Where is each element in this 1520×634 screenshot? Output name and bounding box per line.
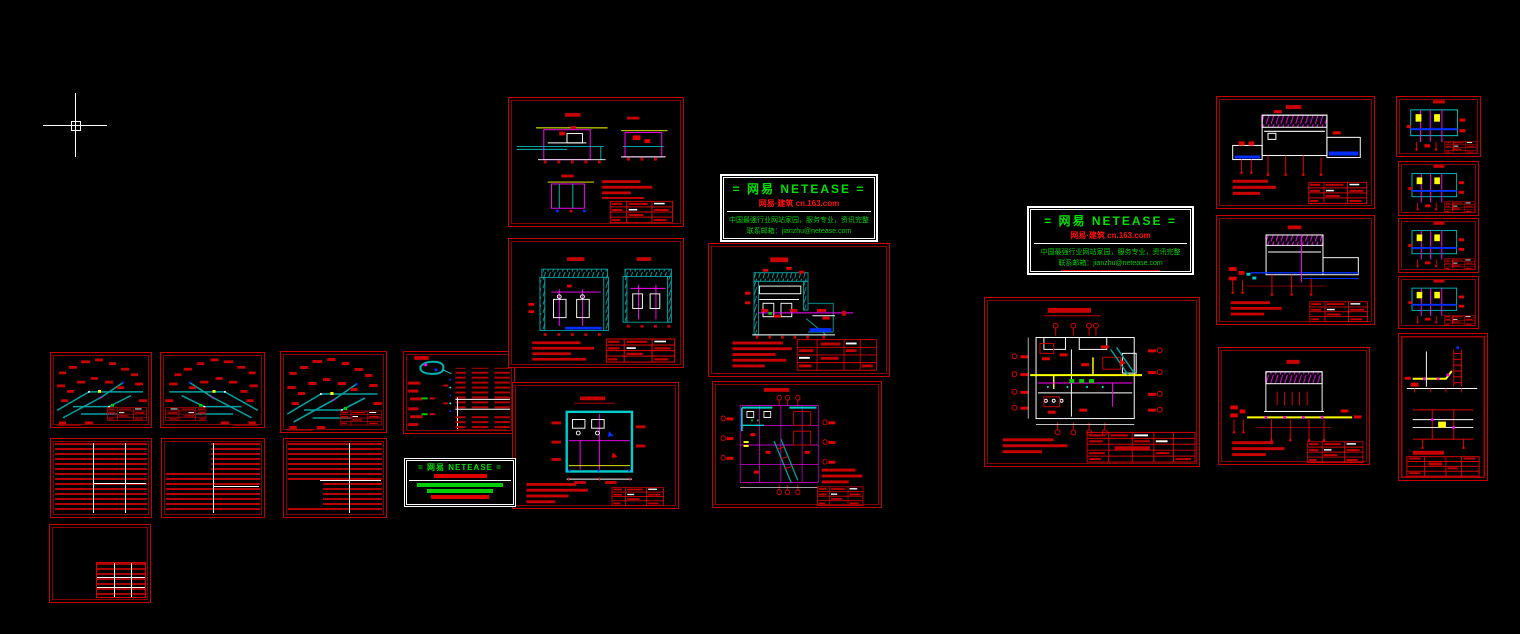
notes <box>1231 301 1282 315</box>
sheet-filter-section-2[interactable] <box>1216 215 1375 325</box>
tank-left <box>528 269 608 336</box>
drops <box>1272 419 1325 439</box>
notes <box>732 342 791 368</box>
drops <box>1268 156 1321 174</box>
pump-cluster <box>1230 406 1245 434</box>
watermark-subtitle: 网易·建筑 cn.163.com <box>759 198 839 209</box>
title-block <box>96 562 146 598</box>
notes <box>1233 180 1276 195</box>
notes <box>1232 441 1285 456</box>
sheet-detail-1[interactable] <box>1396 96 1481 157</box>
notes <box>532 341 594 360</box>
watermark-line1: 中国最强行业网站家园，服务专业，资讯完整 <box>729 215 869 225</box>
filter-media <box>1266 235 1323 245</box>
section-left <box>517 126 608 163</box>
section-right <box>621 131 667 161</box>
station-section-drawing <box>709 244 889 376</box>
fixture-symbols <box>421 379 451 416</box>
title-table <box>1407 457 1479 476</box>
ramp <box>774 439 798 482</box>
filter-section-2-drawing <box>1217 216 1374 324</box>
iso-drawing-2 <box>161 353 264 427</box>
pump-cluster <box>1229 267 1256 294</box>
internal-arrows <box>1277 392 1307 406</box>
sheet-floor-plan-large[interactable] <box>984 297 1200 467</box>
axis-bubbles-sides <box>1012 348 1162 435</box>
sheet-iso-piping-1[interactable] <box>50 352 152 428</box>
watermark-divider <box>1034 243 1187 244</box>
label-marks <box>1020 345 1155 413</box>
notes-text-1 <box>55 443 147 513</box>
floor-plan-large-drawing <box>985 298 1199 466</box>
watermark-divider <box>409 480 511 481</box>
watermark-title: = 网易 NETEASE = <box>418 462 502 473</box>
schedule-text <box>455 368 509 411</box>
netease-watermark-2: = 网易 NETEASE = 网易·建筑 cn.163.com 中国最强行业网站… <box>1027 206 1194 275</box>
detail-4-drawing <box>1399 277 1478 328</box>
green-bar-1 <box>417 483 504 487</box>
watermark-line2: 联系邮箱：jianzhu@netease.com <box>1058 258 1162 268</box>
title-block <box>1087 432 1195 462</box>
sheet-iso-piping-2[interactable] <box>160 352 265 428</box>
axis-bubbles-top <box>777 395 800 405</box>
netease-watermark-small: = 网易 NETEASE = <box>404 458 516 507</box>
tank-plan-drawing <box>513 383 678 508</box>
title-block <box>797 340 876 371</box>
pump-sections-drawing <box>509 98 683 226</box>
trap-detail <box>420 362 443 374</box>
drops <box>1272 275 1311 294</box>
notes <box>526 483 587 503</box>
tank-right <box>623 269 671 328</box>
tank-sections-drawing <box>509 239 683 367</box>
watermark-line2: 联系邮箱：jianzhu@netease.com <box>747 226 851 236</box>
green-bar-2 <box>427 489 493 493</box>
red-bar <box>434 474 487 478</box>
sheet-empty-titleblock[interactable] <box>49 524 151 603</box>
watermark-red-bar <box>1061 270 1160 271</box>
sheet-filter-section-3[interactable] <box>1218 347 1370 465</box>
legend-drawing <box>404 352 514 433</box>
sheet-notes-1[interactable] <box>50 438 152 518</box>
cad-model-space[interactable]: = 网易 NETEASE = 网易·建筑 cn.163.com 中国最强行业网站… <box>0 0 1520 634</box>
sheet-tank-sections[interactable] <box>508 238 684 368</box>
section-bottom <box>548 182 594 212</box>
iso-drawing-3 <box>281 352 386 432</box>
axis-bubbles-top <box>1053 323 1098 335</box>
notes <box>1003 438 1068 453</box>
red-bar-2 <box>431 495 489 499</box>
foundation-marks <box>752 335 835 339</box>
sheet-filter-section-1[interactable] <box>1216 96 1375 209</box>
sheet-notes-2[interactable] <box>161 438 265 518</box>
walls <box>742 408 817 447</box>
detail-2-drawing <box>1399 162 1478 215</box>
sheet-iso-piping-3[interactable] <box>280 351 387 433</box>
filter-section-3-drawing <box>1219 348 1369 464</box>
watermark-title: = 网易 NETEASE = <box>733 180 866 197</box>
netease-watermark-1: = 网易 NETEASE = 网易·建筑 cn.163.com 中国最强行业网站… <box>720 174 878 242</box>
watermark-subtitle: 网易·建筑 cn.163.com <box>1070 230 1150 241</box>
notes <box>602 180 652 199</box>
sheet-detail-2[interactable] <box>1398 161 1479 216</box>
detail-1-drawing <box>1397 97 1480 156</box>
detail-3-drawing <box>1399 219 1478 272</box>
watermark-line1: 中国最强行业网站家园，服务专业，资讯完整 <box>1041 247 1181 257</box>
lower-detail <box>1413 410 1474 449</box>
filter-media <box>1266 372 1322 384</box>
sheet-notes-3[interactable] <box>283 438 387 518</box>
sheet-pump-sections[interactable] <box>508 97 684 227</box>
watermark-divider <box>727 211 871 212</box>
sheet-detail-3[interactable] <box>1398 218 1479 273</box>
axis-bubbles-sides <box>721 416 827 495</box>
row-labels <box>408 382 448 426</box>
floor-plan-small-drawing <box>713 382 881 507</box>
piping <box>759 311 854 316</box>
sheet-legend-schedule[interactable] <box>403 351 515 434</box>
sheet-station-section[interactable] <box>708 243 890 377</box>
filter-media <box>1262 115 1327 127</box>
detail-tall-drawing <box>1399 334 1487 480</box>
upper-detail <box>1405 346 1477 392</box>
sheet-floor-plan-small[interactable] <box>712 381 882 508</box>
filter-section-1-drawing <box>1217 97 1374 208</box>
structure <box>754 273 833 335</box>
watermark-title: = 网易 NETEASE = <box>1044 212 1177 229</box>
notes <box>822 469 863 484</box>
sheet-detail-4[interactable] <box>1398 276 1479 329</box>
iso-drawing-1 <box>51 353 151 427</box>
sheet-tank-plan[interactable] <box>512 382 679 509</box>
sheet-detail-tall[interactable] <box>1398 333 1488 481</box>
